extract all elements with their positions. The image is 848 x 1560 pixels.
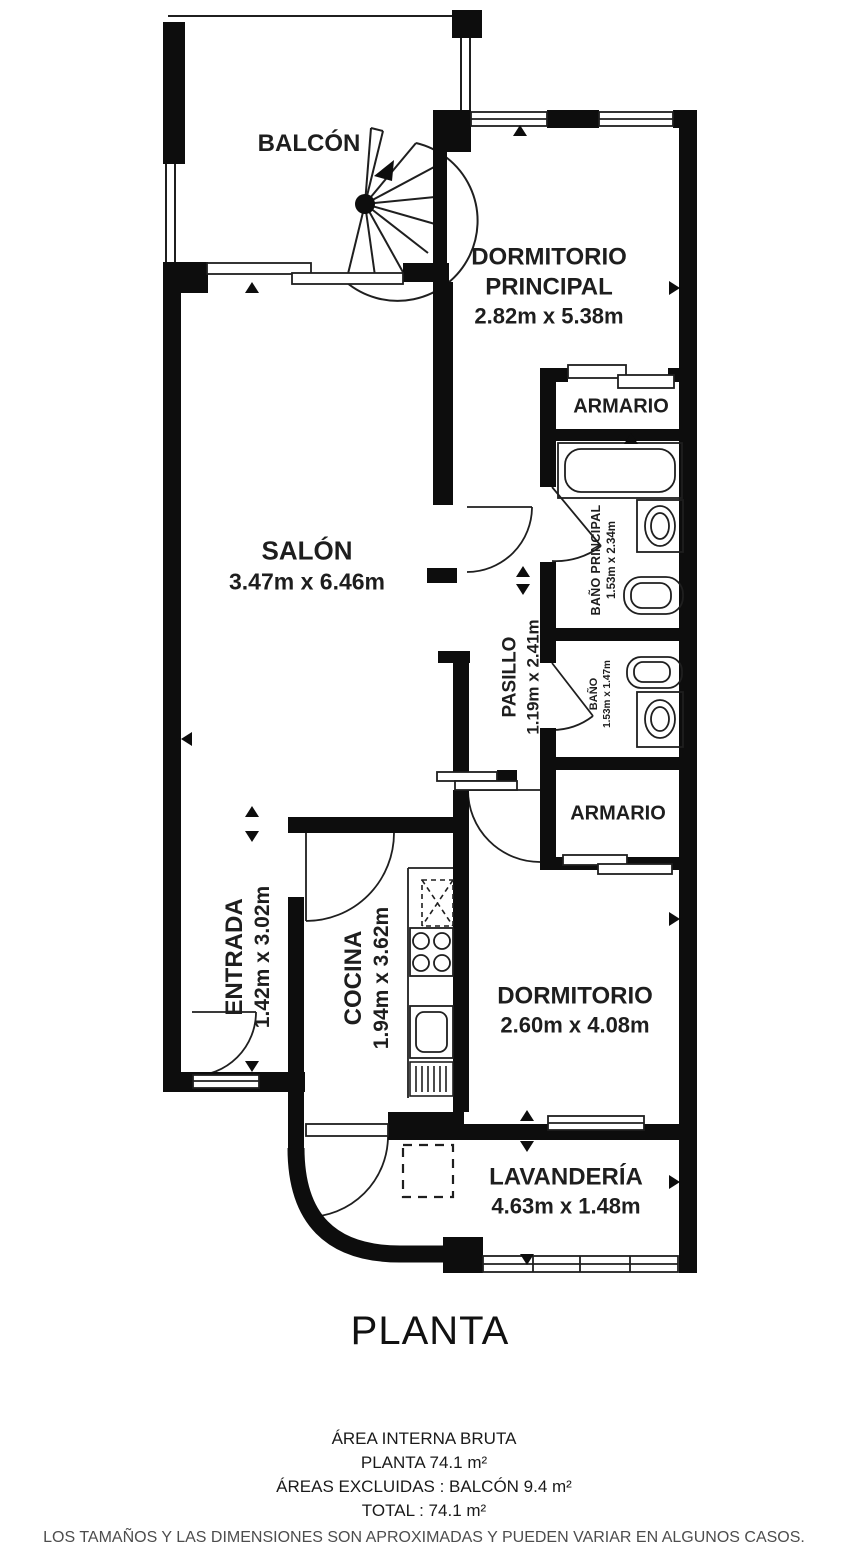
bathroom-name: BAÑO bbox=[588, 660, 602, 728]
disclaimer-text: LOS TAMAÑOS Y LAS DIMENSIONES SON APROXI… bbox=[43, 1529, 805, 1547]
sliding-door-wardrobe-top bbox=[568, 365, 674, 388]
label-balcony: BALCÓN bbox=[258, 129, 361, 159]
bedroom-dims: 2.60m x 4.08m bbox=[497, 1011, 653, 1039]
bedroom-name: DORMITORIO bbox=[497, 981, 653, 1011]
area-summary: ÁREA INTERNA BRUTA PLANTA 74.1 m² ÁREAS … bbox=[276, 1427, 572, 1523]
hallway-dims: 1.19m x 2.41m bbox=[522, 619, 543, 734]
label-laundry: LAVANDERÍA 4.63m x 1.48m bbox=[489, 1162, 643, 1220]
master-bedroom-name-1: DORMITORIO bbox=[471, 242, 627, 272]
kitchen-name: COCINA bbox=[339, 907, 369, 1049]
sink-master-icon bbox=[637, 500, 683, 552]
entrance-dims: 1.42m x 3.02m bbox=[250, 886, 276, 1028]
plan-title: PLANTA bbox=[351, 1306, 510, 1356]
laundry-door-leaf bbox=[306, 1124, 388, 1136]
fridge-icon bbox=[410, 1062, 453, 1096]
label-entrance: ENTRADA 1.42m x 3.02m bbox=[220, 886, 276, 1028]
kitchen-counter bbox=[408, 868, 453, 1098]
toilet-bath-icon bbox=[637, 692, 683, 747]
stove-icon bbox=[410, 928, 453, 976]
master-bathroom-dims: 1.53m x 2.34m bbox=[605, 505, 619, 616]
kitchen-appliance-dashed-icon bbox=[422, 880, 453, 926]
laundry-name: LAVANDERÍA bbox=[489, 1162, 643, 1192]
bathtub-icon bbox=[558, 443, 682, 498]
label-hallway: PASILLO 1.19m x 2.41m bbox=[499, 619, 544, 734]
master-bedroom-name-2: PRINCIPAL bbox=[471, 272, 627, 302]
summary-excluded-areas: ÁREAS EXCLUIDAS : BALCÓN 9.4 m² bbox=[276, 1475, 572, 1499]
label-wardrobe-top: ARMARIO bbox=[573, 395, 669, 420]
entrance-name: ENTRADA bbox=[220, 886, 250, 1028]
label-master-bathroom: BAÑO PRINCIPAL 1.53m x 2.34m bbox=[589, 505, 619, 616]
window-master-bedroom-1 bbox=[471, 112, 547, 126]
curved-wall bbox=[296, 1148, 446, 1254]
kitchen-dims: 1.94m x 3.62m bbox=[369, 907, 395, 1049]
label-bathroom: BAÑO 1.53m x 1.47m bbox=[588, 660, 614, 728]
laundry-dims: 4.63m x 1.48m bbox=[489, 1192, 643, 1220]
master-bathroom-name: BAÑO PRINCIPAL bbox=[589, 505, 605, 616]
hallway-name: PASILLO bbox=[499, 619, 523, 734]
washer-space-dashed-icon bbox=[403, 1145, 453, 1197]
summary-total-area: TOTAL : 74.1 m² bbox=[276, 1499, 572, 1523]
window-bedroom-vent bbox=[548, 1116, 644, 1130]
bathroom-dims: 1.53m x 1.47m bbox=[602, 660, 615, 728]
window-master-bedroom-2 bbox=[599, 112, 673, 126]
living-room-name: SALÓN bbox=[229, 534, 385, 567]
kitchen-sink-icon bbox=[410, 1006, 453, 1058]
summary-planta-area: PLANTA 74.1 m² bbox=[276, 1451, 572, 1475]
summary-gross-area: ÁREA INTERNA BRUTA bbox=[276, 1427, 572, 1451]
window-entrance bbox=[193, 1075, 259, 1088]
label-wardrobe-bottom: ARMARIO bbox=[570, 802, 666, 827]
master-bedroom-dims: 2.82m x 5.38m bbox=[471, 302, 627, 330]
label-bedroom: DORMITORIO 2.60m x 4.08m bbox=[497, 981, 653, 1039]
sink-bath-icon bbox=[627, 657, 682, 688]
window-laundry bbox=[483, 1256, 678, 1272]
label-kitchen: COCINA 1.94m x 3.62m bbox=[339, 907, 395, 1049]
toilet-master-icon bbox=[624, 577, 683, 614]
label-master-bedroom: DORMITORIO PRINCIPAL 2.82m x 5.38m bbox=[471, 242, 627, 330]
label-living-room: SALÓN 3.47m x 6.46m bbox=[229, 534, 385, 595]
floorplan-canvas: BALCÓN DORMITORIO PRINCIPAL 2.82m x 5.38… bbox=[0, 0, 848, 1560]
living-room-dims: 3.47m x 6.46m bbox=[229, 567, 385, 596]
doors bbox=[192, 487, 601, 1217]
